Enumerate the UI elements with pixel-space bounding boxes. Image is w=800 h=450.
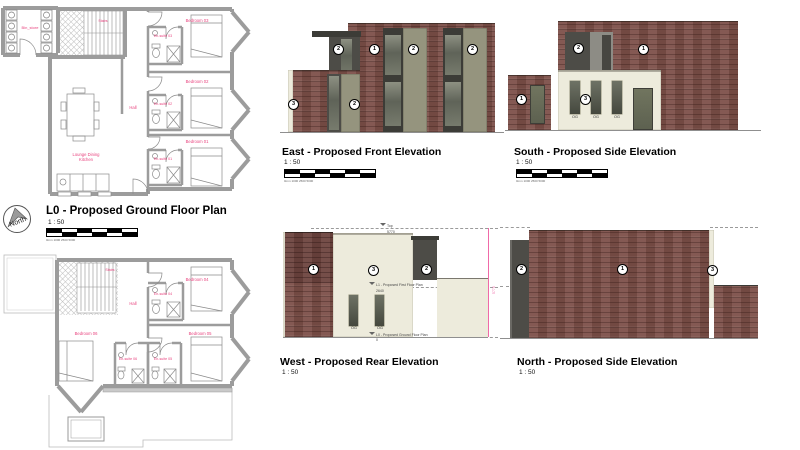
entrance-door xyxy=(530,85,545,124)
keynote-cladding: 2 xyxy=(573,43,584,54)
ff-internal-walls xyxy=(115,260,232,386)
east-elevation: 2 1 2 2 3 2 xyxy=(283,8,500,140)
keynote-render: 3 xyxy=(707,265,718,276)
room-label-bedroom-04: Bedroom 04 xyxy=(186,277,209,282)
south-recess-panel xyxy=(590,32,613,71)
window-frame xyxy=(383,28,403,132)
north-elevation-title: North - Proposed Side Elevation xyxy=(517,356,677,368)
level-marker-icon xyxy=(369,282,375,285)
drawing-sheet: Bin_store Stairs Bedroom 03 En-suite 03 … xyxy=(0,0,800,450)
keynote-render: 3 xyxy=(288,99,299,110)
north-cladding-panel xyxy=(510,240,529,338)
level-marker-icon xyxy=(369,332,375,335)
gf-bin-store-bins xyxy=(6,10,52,53)
keynote-brick: 1 xyxy=(638,44,649,55)
room-label-bedroom-03: Bedroom 03 xyxy=(186,18,209,23)
level-value-l1: 2640 xyxy=(376,289,384,293)
ground-line xyxy=(505,130,761,131)
west-elevation: OG OG 1 3 2 Top 5770 L1 - Proposed First… xyxy=(283,222,500,349)
window-frame xyxy=(327,74,341,132)
keynote-render: 3 xyxy=(368,265,379,276)
room-label-bedroom-01: Bedroom 01 xyxy=(186,139,209,144)
scalebar-row xyxy=(46,233,138,237)
south-elevation-title: South - Proposed Side Elevation xyxy=(514,146,676,158)
west-elevation-scale: 1 : 50 xyxy=(282,369,298,376)
west-brick-upper xyxy=(285,232,333,283)
keynote-brick: 1 xyxy=(516,94,527,105)
level-line-top xyxy=(311,228,498,229)
level-line xyxy=(500,286,509,287)
room-label-ensuite-02: En-suite 02 xyxy=(154,102,172,106)
rear-door xyxy=(633,88,653,130)
ground-floor-plan: Bin_store Stairs Bedroom 03 En-suite 03 … xyxy=(0,2,258,202)
og-label: OG xyxy=(589,116,603,120)
window-frame xyxy=(443,28,463,132)
west-elevation-title: West - Proposed Rear Elevation xyxy=(280,356,439,368)
east-elevation-scale: 1 : 50 xyxy=(284,159,300,166)
window-glass xyxy=(445,35,461,75)
ground-line xyxy=(280,132,504,133)
room-label-bin-store: Bin_store xyxy=(22,25,40,30)
room-label-ensuite-03: En-suite 03 xyxy=(154,34,172,38)
scalebar-row xyxy=(516,174,608,178)
level-value-top: 5770 xyxy=(387,230,395,234)
keynote-cladding: 2 xyxy=(333,44,344,55)
east-elevation-title: East - Proposed Front Elevation xyxy=(282,146,441,158)
level-tag-top: Top xyxy=(380,223,393,228)
room-label-ensuite-01: En-suite 01 xyxy=(154,157,172,161)
window-glass xyxy=(385,35,401,75)
north-brick-lower-wall xyxy=(714,285,758,338)
east-scalebar: 0mm 1000 2500 5000 xyxy=(284,169,376,183)
north-elevation-scale: 1 : 50 xyxy=(519,369,535,376)
ground-plan-scale: 1 : 50 xyxy=(48,219,64,226)
level-line xyxy=(710,227,758,228)
obscure-glazed-window xyxy=(375,295,384,326)
room-label-bedroom-05: Bedroom 05 xyxy=(189,331,212,336)
room-label-lounge-2: Kitchen xyxy=(79,157,94,162)
keynote-cladding: 2 xyxy=(408,44,419,55)
ground-line xyxy=(500,338,758,339)
room-label-ensuite-04: En-suite 04 xyxy=(154,292,172,296)
keynote-cladding: 2 xyxy=(516,264,527,275)
ff-flat-roof-outline xyxy=(4,255,56,313)
scalebar-note: 0mm 1000 2500 5000 xyxy=(284,179,376,183)
room-label-hall: Hall xyxy=(129,105,136,110)
room-label-stairs: Stairs xyxy=(98,19,107,23)
og-label: OG xyxy=(568,116,582,120)
dimension-line xyxy=(488,228,489,337)
obscure-glazed-window xyxy=(612,81,622,114)
north-elevation: 2 1 3 xyxy=(500,222,760,349)
dimension-text: 5770 xyxy=(492,286,496,294)
scalebar-row xyxy=(284,174,376,178)
keynote-brick: 1 xyxy=(308,264,319,275)
og-label: OG xyxy=(373,327,387,331)
keynote-brick: 1 xyxy=(617,264,628,275)
north-brick-wall xyxy=(529,230,709,338)
keynote-brick: 1 xyxy=(369,44,380,55)
keynote-cladding: 2 xyxy=(349,99,360,110)
room-label-bedroom-06: Bedroom 06 xyxy=(75,331,98,336)
room-label-stairs: Stairs xyxy=(105,268,114,272)
keynote-cladding: 2 xyxy=(421,264,432,275)
ground-plan-title: L0 - Proposed Ground Floor Plan xyxy=(46,205,227,217)
room-label-bedroom-02: Bedroom 02 xyxy=(186,79,209,84)
obscure-glazed-window xyxy=(570,81,580,114)
og-label: OG xyxy=(347,327,361,331)
scalebar-note: 0mm 1000 2500 5000 xyxy=(516,179,608,183)
obscure-glazed-window xyxy=(591,81,601,114)
south-scalebar: 0mm 1000 2500 5000 xyxy=(516,169,608,183)
cladding-panel xyxy=(463,28,487,132)
west-brick-lower xyxy=(285,283,333,337)
window-glass xyxy=(602,35,611,71)
obscure-glazed-window xyxy=(349,295,358,326)
scalebar-note: 0mm 1000 2500 5000 xyxy=(46,238,138,242)
ground-plan-scalebar: 0mm 1000 2500 5000 xyxy=(46,228,138,242)
og-label: OG xyxy=(610,116,624,120)
level-tag-l1: L1 - Proposed First Floor Plan xyxy=(369,282,423,287)
room-label-ensuite-05: En-suite 05 xyxy=(154,357,172,361)
level-value-l0: 0 xyxy=(376,338,378,342)
south-elevation: OG OG OG 2 1 1 3 xyxy=(505,8,763,140)
window-glass xyxy=(445,82,461,126)
gf-internal-walls xyxy=(122,9,232,189)
keynote-cladding: 2 xyxy=(467,44,478,55)
level-tag-l0: L0 - Proposed Ground Floor Plan xyxy=(369,332,428,337)
ground-line xyxy=(283,337,488,338)
north-arrow-icon: North xyxy=(2,204,34,236)
window-glass xyxy=(329,76,339,130)
room-label-hall: Hall xyxy=(129,301,136,306)
level-line xyxy=(500,227,530,228)
gf-outer-walls xyxy=(3,8,249,194)
west-single-storey-render xyxy=(437,278,488,337)
south-elevation-scale: 1 : 50 xyxy=(516,159,532,166)
first-floor-plan: Stairs Hall Bedroom 04 En-suite 04 Bedro… xyxy=(0,245,270,450)
keynote-render: 3 xyxy=(580,94,591,105)
level-marker-icon xyxy=(380,223,386,226)
ff-roof-below-outline xyxy=(49,388,232,447)
room-label-ensuite-06: En-suite 06 xyxy=(119,357,137,361)
window-glass xyxy=(385,82,401,126)
